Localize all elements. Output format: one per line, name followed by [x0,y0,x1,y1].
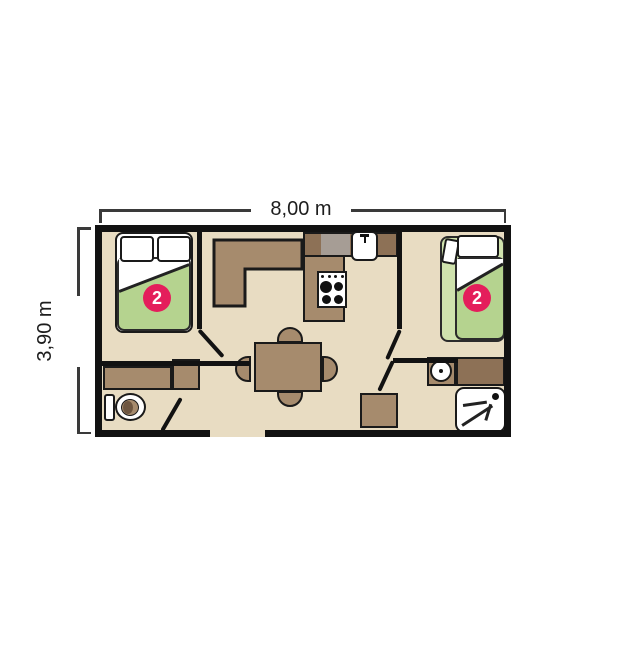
capacity-badge-bedroom-right: 2 [463,284,491,312]
wall-bedroom-right [397,232,402,329]
floor-plan: 2 2 8,00 m 3,90 m [0,0,617,654]
sink-tap-stem [364,235,367,243]
pillow-left-2 [157,236,191,262]
dim-width-label: 8,00 m [251,198,351,220]
wall-bathroom [393,358,458,363]
capacity-badge-bedroom-left: 2 [143,284,171,312]
dim-width-line-right [351,209,506,212]
shower-head-dot [492,393,499,400]
dim-height-tick-top [77,227,91,230]
dim-height-label: 3,90 m [34,281,56,381]
wall-outer-right [504,225,511,437]
dim-height-line-top [77,227,80,296]
wall-outer-bottom-left [95,430,210,437]
stove-knob [341,275,344,278]
dining-table [254,342,322,392]
stove-knob [321,275,324,278]
dim-width-tick-right [504,209,507,223]
stove-burner [322,295,331,304]
stove-knob [328,275,331,278]
wc-cabinet [103,366,172,390]
pillow-left-1 [120,236,154,262]
wall-bedroom-left [197,232,202,329]
storage-cabinet [360,393,398,428]
wall-outer-top [95,225,511,232]
wall-wc [102,361,250,366]
stove-burner [334,295,343,304]
stove-knob [334,275,337,278]
stove-burner [320,281,332,293]
dim-width-line-left [99,209,251,212]
dim-height-line-bottom [77,367,80,434]
bathroom-counter [456,357,505,386]
toilet-seat-shade [123,401,133,414]
sofa-l-shaped [212,238,304,308]
wall-outer-left [95,225,102,437]
worktop-appliance [321,234,350,255]
stove-burner [334,282,343,291]
dim-height-tick-bottom [77,432,91,435]
pillow-right-main [457,235,499,258]
wall-outer-bottom-right [265,430,511,437]
toilet-cistern [104,394,115,421]
entrance-threshold [210,430,265,437]
washbasin-tap-dot [439,369,443,373]
dim-width-tick-left [99,209,102,223]
